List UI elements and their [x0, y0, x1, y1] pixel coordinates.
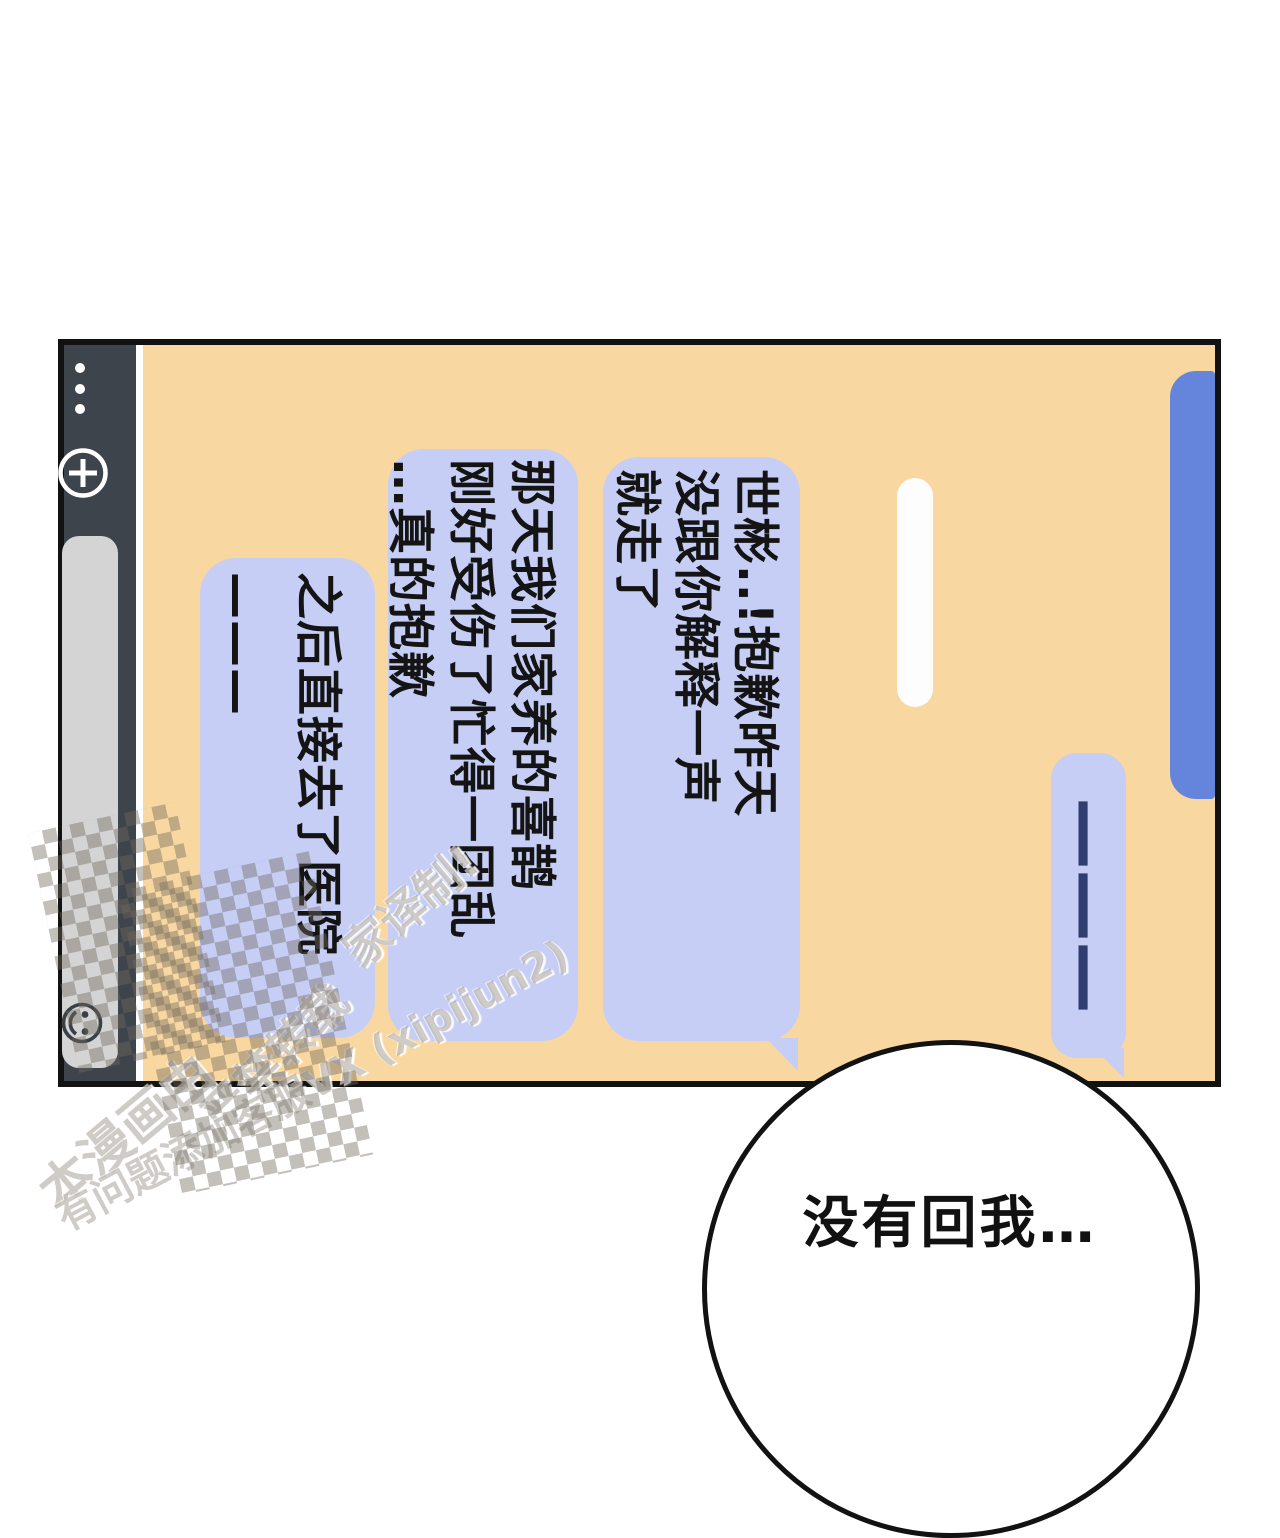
received-bubble-dash: ———	[1051, 753, 1126, 1058]
more-options-icon[interactable]	[75, 363, 85, 373]
speech-balloon	[702, 1040, 1200, 1538]
more-options-icon[interactable]	[75, 404, 85, 414]
plus-attachment-icon[interactable]	[57, 447, 109, 499]
bubble-dash-text: ———	[1052, 753, 1124, 1058]
speech-balloon-text: 没有回我…	[790, 1178, 1110, 1259]
more-options-icon[interactable]	[75, 384, 85, 394]
sent-bubble-blue	[1170, 371, 1215, 799]
sent-bubble-white	[897, 478, 933, 707]
received-bubble-1: 世彬..!抱歉昨天 没跟你解释一声 就走了	[603, 457, 800, 1041]
bubble-1-text: 世彬..!抱歉昨天 没跟你解释一声 就走了	[606, 469, 784, 1025]
